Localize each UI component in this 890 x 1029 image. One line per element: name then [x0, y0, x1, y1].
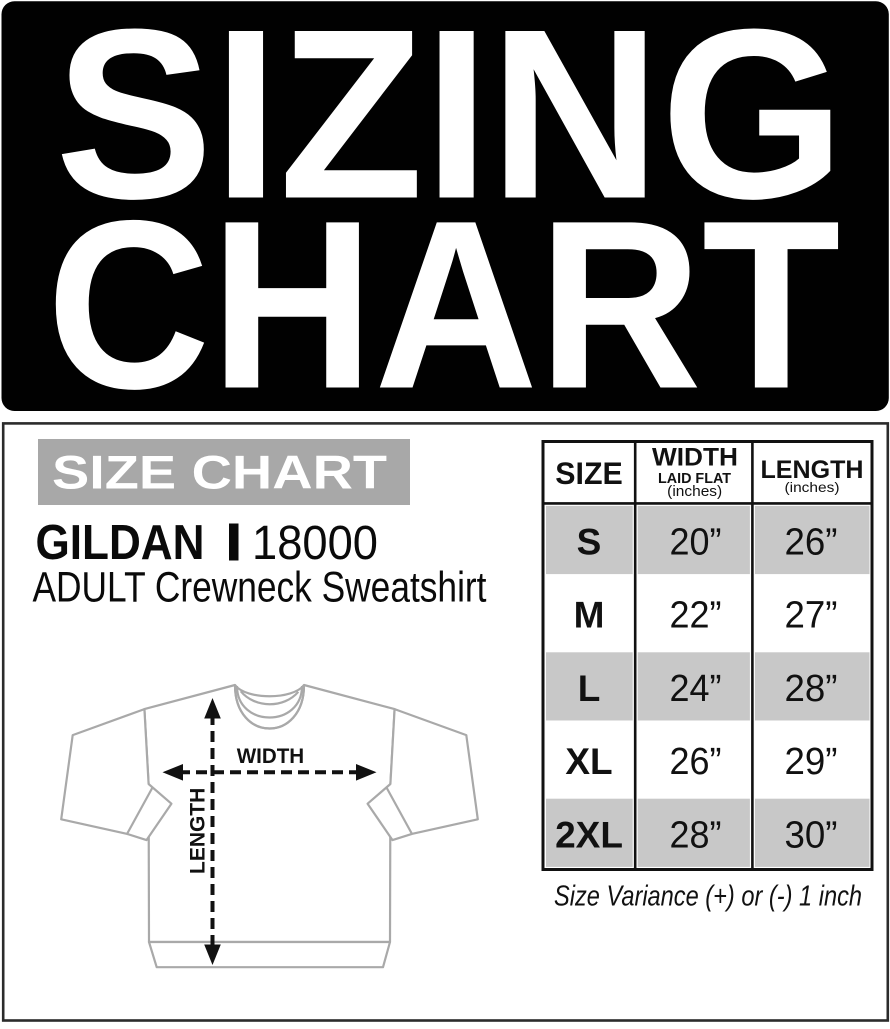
svg-text:XL: XL — [565, 741, 612, 782]
svg-text:SIZE CHART: SIZE CHART — [52, 446, 387, 499]
svg-text:WIDTH: WIDTH — [652, 444, 738, 472]
svg-text:26”: 26” — [785, 522, 838, 564]
svg-text:(inches): (inches) — [667, 483, 722, 500]
svg-text:M: M — [574, 595, 605, 636]
svg-text:CHART: CHART — [47, 171, 841, 439]
svg-text:29”: 29” — [785, 741, 838, 783]
svg-text:30”: 30” — [785, 814, 838, 856]
svg-text:LENGTH: LENGTH — [186, 788, 210, 874]
svg-text:L: L — [578, 668, 601, 709]
svg-text:24”: 24” — [670, 668, 722, 710]
svg-text:GILDAN: GILDAN — [36, 516, 205, 570]
svg-text:(inches): (inches) — [785, 479, 840, 495]
svg-text:ADULT Crewneck Sweatshirt: ADULT Crewneck Sweatshirt — [33, 565, 487, 612]
svg-text:27”: 27” — [785, 595, 838, 637]
svg-text:WIDTH: WIDTH — [237, 744, 305, 768]
svg-text:Size Variance (+) or (-) 1 inc: Size Variance (+) or (-) 1 inch — [554, 881, 862, 913]
svg-text:S: S — [577, 522, 602, 563]
svg-text:22”: 22” — [670, 595, 722, 637]
svg-text:20”: 20” — [670, 522, 722, 564]
svg-text:18000: 18000 — [252, 517, 378, 570]
svg-text:26”: 26” — [670, 741, 722, 783]
svg-text:28”: 28” — [670, 814, 722, 856]
svg-text:28”: 28” — [785, 668, 838, 710]
svg-text:2XL: 2XL — [555, 814, 623, 855]
svg-text:SIZE: SIZE — [555, 455, 623, 491]
